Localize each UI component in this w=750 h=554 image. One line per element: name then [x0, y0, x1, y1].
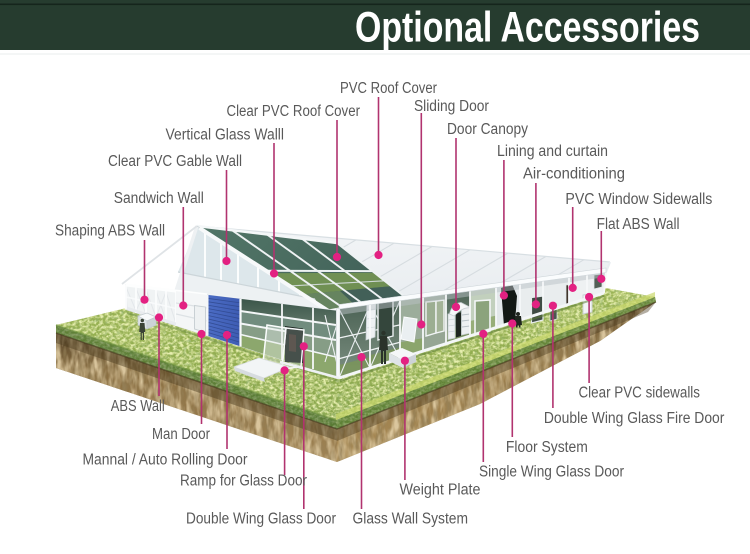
- svg-text:Single Wing Glass Door: Single Wing Glass Door: [479, 464, 624, 481]
- svg-text:Ramp for Glass Door: Ramp for Glass Door: [180, 473, 307, 490]
- svg-text:Flat ABS Wall: Flat ABS Wall: [597, 216, 680, 233]
- svg-text:Clear PVC sidewalls: Clear PVC sidewalls: [579, 385, 701, 402]
- svg-text:Air-conditioning: Air-conditioning: [523, 166, 625, 183]
- svg-text:Clear PVC Roof Cover: Clear PVC Roof Cover: [227, 103, 361, 120]
- svg-text:PVC Window Sidewalls: PVC Window Sidewalls: [565, 191, 712, 208]
- svg-text:Double Wing Glass Fire Door: Double Wing Glass Fire Door: [544, 410, 725, 427]
- svg-text:Vertical Glass Walll: Vertical Glass Walll: [166, 127, 285, 144]
- svg-text:Double Wing Glass Door: Double Wing Glass Door: [186, 511, 336, 528]
- svg-text:PVC Roof Cover: PVC Roof Cover: [340, 80, 437, 97]
- svg-text:Man Door: Man Door: [152, 426, 210, 443]
- svg-text:Mannal / Auto Rolling Door: Mannal / Auto Rolling Door: [83, 452, 248, 469]
- svg-text:Clear PVC Gable Wall: Clear PVC Gable Wall: [108, 153, 242, 170]
- svg-text:Weight Plate: Weight Plate: [400, 482, 481, 499]
- svg-text:Floor System: Floor System: [506, 439, 588, 456]
- svg-text:Lining and curtain: Lining and curtain: [497, 143, 608, 160]
- svg-text:Optional Accessories: Optional Accessories: [355, 4, 700, 52]
- svg-text:Glass Wall System: Glass Wall System: [353, 511, 469, 528]
- svg-text:ABS Wall: ABS Wall: [111, 398, 165, 415]
- svg-text:Sandwich Wall: Sandwich Wall: [114, 190, 204, 207]
- svg-text:Sliding Door: Sliding Door: [414, 98, 489, 115]
- svg-text:Shaping ABS Wall: Shaping ABS Wall: [55, 223, 165, 240]
- svg-text:Door Canopy: Door Canopy: [447, 121, 528, 138]
